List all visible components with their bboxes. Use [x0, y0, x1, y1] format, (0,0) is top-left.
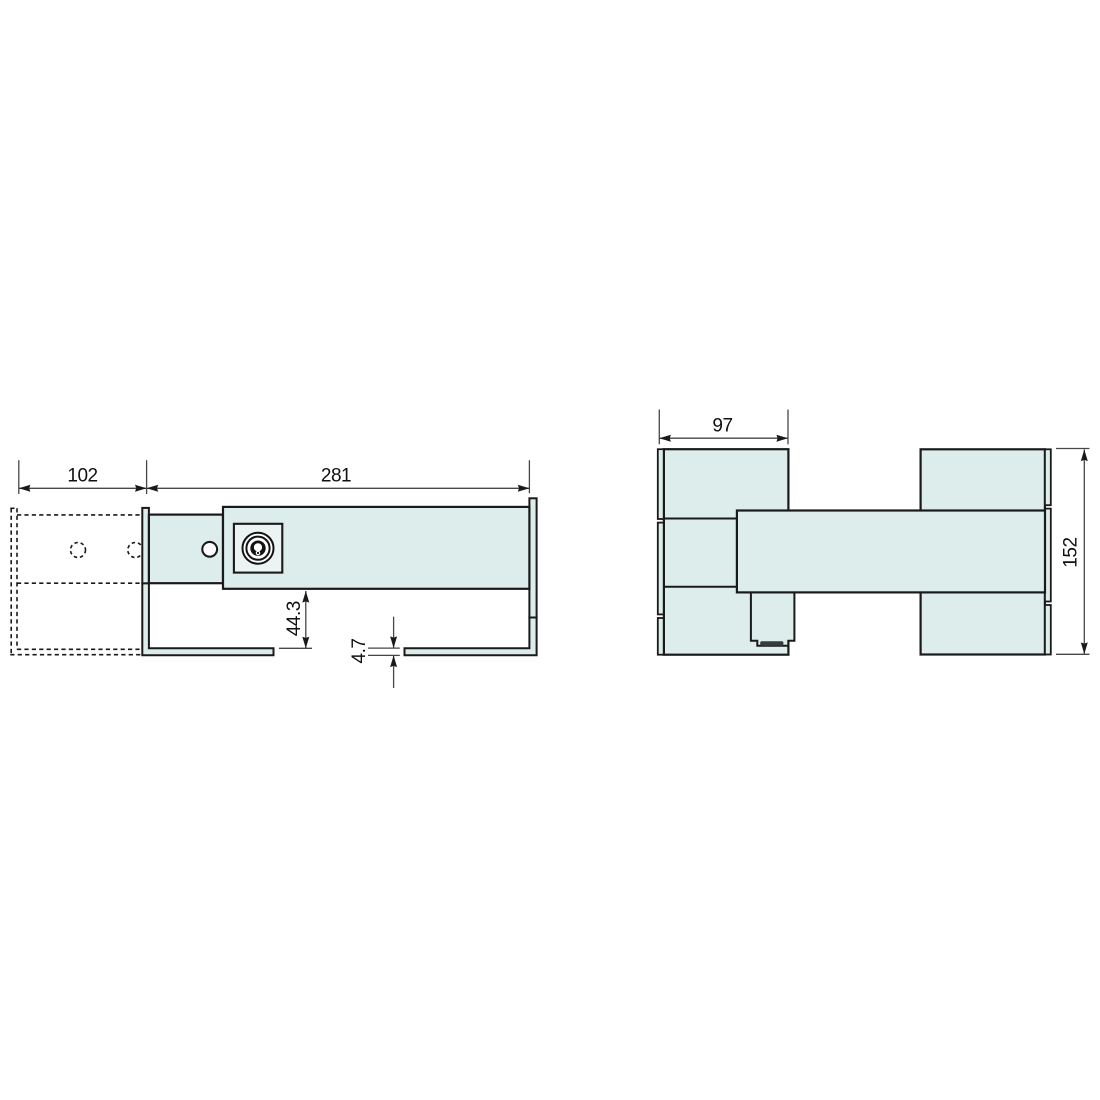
svg-text:44.3: 44.3 — [284, 601, 305, 636]
svg-text:152: 152 — [1061, 537, 1082, 567]
svg-text:102: 102 — [67, 466, 97, 487]
svg-text:4.7: 4.7 — [349, 639, 370, 664]
svg-text:281: 281 — [321, 466, 351, 487]
svg-text:97: 97 — [712, 416, 732, 437]
